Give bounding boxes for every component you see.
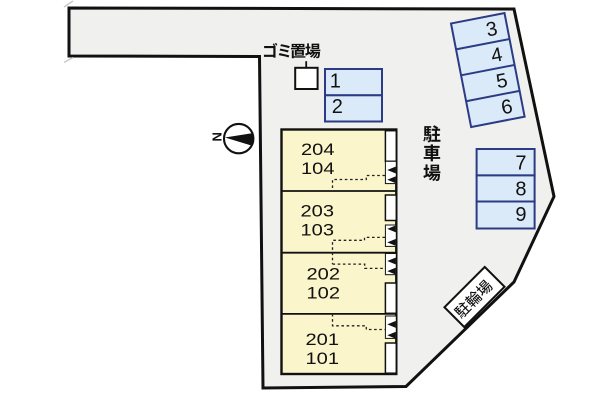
svg-text:103: 103: [301, 221, 335, 240]
svg-text:202: 202: [307, 265, 341, 284]
svg-text:203: 203: [301, 202, 335, 221]
svg-text:104: 104: [301, 159, 335, 178]
svg-text:2: 2: [332, 96, 343, 118]
svg-text:102: 102: [307, 284, 341, 303]
svg-text:8: 8: [515, 179, 526, 201]
svg-text:201: 201: [306, 330, 340, 349]
svg-text:N: N: [209, 132, 224, 141]
svg-text:7: 7: [515, 153, 526, 175]
svg-text:204: 204: [301, 140, 335, 159]
svg-text:1: 1: [330, 71, 341, 93]
svg-text:9: 9: [515, 204, 526, 226]
svg-text:101: 101: [306, 349, 340, 368]
